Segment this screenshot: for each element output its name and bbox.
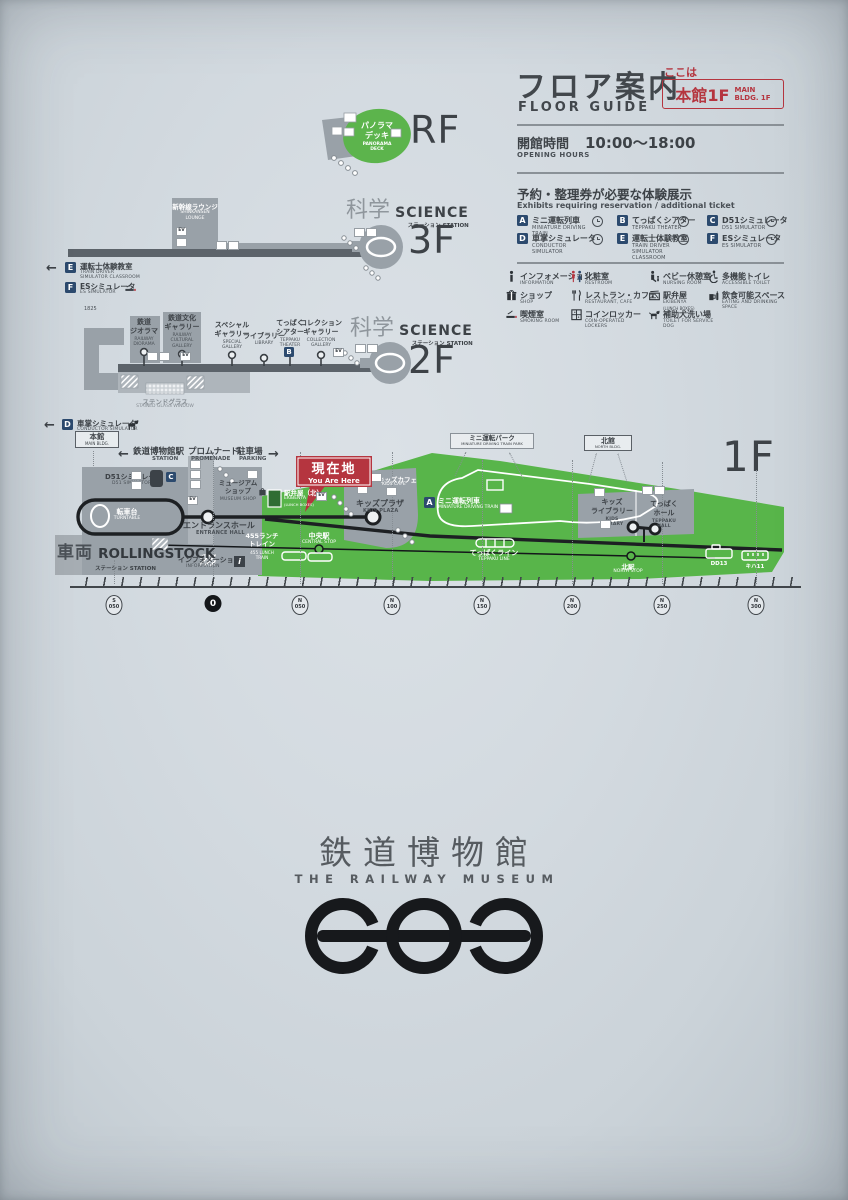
divider xyxy=(517,262,784,264)
accessible-toilet-icon xyxy=(707,270,720,283)
side-label-f-en: ES SIMULATOR xyxy=(80,290,116,295)
map-badge-b: B xyxy=(284,347,294,357)
stained-glass-label-en: STAINED GLASS WINDOW xyxy=(136,404,194,409)
room-label-en: SPECIAL GALLERY xyxy=(222,340,242,351)
restroom-icon xyxy=(366,228,377,237)
museum-shop-label-en: MUSEUM SHOP xyxy=(220,497,256,502)
lockers-icon xyxy=(570,308,583,321)
accessible-icon xyxy=(354,228,365,237)
kiha11-label: キハ11 xyxy=(746,562,765,570)
side-badge-f: F xyxy=(65,282,76,293)
legend-label-en: CONDUCTOR SIMULATOR xyxy=(532,243,590,255)
ruler-mark-n100: N100 xyxy=(384,595,401,615)
facility-label-en: RESTAURANT, CAFE xyxy=(585,300,632,305)
ruler-mark-n150: N150 xyxy=(474,595,491,615)
stained-glass-shape xyxy=(146,383,184,394)
reservation-subtitle: Exhibits requiring reservation / additio… xyxy=(517,201,735,210)
hours-label-en: OPENING HOURS xyxy=(517,151,590,159)
ekibenya-north-note: (LUNCH BOXES) xyxy=(284,502,314,507)
floor-label-3f: 3F xyxy=(408,218,456,262)
facility-label-en: INFORMATION xyxy=(520,281,554,286)
clock-icon xyxy=(678,216,689,227)
facility-label-en: RESTROOM xyxy=(585,281,612,286)
legend-badge-c: C xyxy=(707,215,718,226)
facility-label-en: SHOP xyxy=(520,300,533,305)
clock-icon xyxy=(766,234,777,245)
map-badge-a: A xyxy=(424,497,435,508)
room-label: 鉄道文化 ギャラリー xyxy=(165,314,200,332)
legend-badge-b: B xyxy=(617,215,628,226)
restroom-icon xyxy=(190,470,201,479)
smoking-icon xyxy=(505,308,518,321)
teppaku-line-label-en: TEPPAKU LINE xyxy=(478,557,509,562)
main-bldg-box: 本館 MAIN BLDG. xyxy=(75,431,119,448)
legend-badge-f: F xyxy=(707,233,718,244)
teppaku-hall-label: てっぱく ホール xyxy=(650,500,678,518)
side-label-e-en: TRAIN DRIVER SIMULATOR CLASSROOM xyxy=(80,270,140,280)
restaurant-icon xyxy=(386,487,397,496)
legend-label-en: TEPPAKU THEATER xyxy=(632,225,682,231)
ruler-mark-n300: N300 xyxy=(748,595,765,615)
map-badge-c: C xyxy=(166,472,176,482)
map-graphics xyxy=(0,0,848,1200)
facility-label-en: ACCESSIBLE TOILET xyxy=(722,281,777,286)
museum-shop-label: ミュージアム ショップ xyxy=(219,479,257,496)
accessible-icon xyxy=(190,460,201,469)
clock-icon xyxy=(592,216,603,227)
elevator-icon: EV xyxy=(180,352,191,361)
current-floor-jp: 本館1F xyxy=(675,82,729,106)
service-dog-icon xyxy=(125,417,140,432)
facility-label-en: NURSING ROOM xyxy=(663,281,702,286)
information-icon: i xyxy=(234,556,245,567)
measure-label: 1825 xyxy=(84,306,97,312)
station-label-en: STATION xyxy=(152,456,178,462)
legend-badge-e: E xyxy=(617,233,628,244)
grid-line xyxy=(482,460,483,584)
accessible-icon xyxy=(642,486,653,495)
room-label: コレクション ギャラリー xyxy=(300,319,342,337)
service-dog-icon xyxy=(648,308,661,321)
facility-label-en: TOILET FOR SERVICE DOG xyxy=(663,319,723,329)
clock-icon xyxy=(766,216,777,227)
museum-logo-jp: 鉄道博物館 xyxy=(319,826,539,874)
ruler-mark-n050: N050 xyxy=(292,595,309,615)
mini-train-label-en: MINIATURE DRIVING TRAIN xyxy=(438,505,498,510)
smoking-icon xyxy=(124,281,137,294)
railway-museum-logo-rings xyxy=(311,904,537,968)
restroom-icon xyxy=(228,241,239,250)
restaurant-icon xyxy=(570,289,583,302)
kids-plaza-label-en: KIDS PLAZA xyxy=(363,508,398,514)
room-label-en: RAILWAY DIORAMA xyxy=(133,337,154,348)
you-are-here-badge: 現在地 You Are Here xyxy=(296,456,372,487)
entrance-hall-label-en: ENTRANCE HALL xyxy=(196,530,245,536)
museum-logo-en: THE RAILWAY MUSEUM xyxy=(295,872,560,886)
left-arrow: ← xyxy=(46,261,57,276)
floor-guide-sign-photo: フロア案内 FLOOR GUIDE ここは 本館1F MAIN BLDG. 1F… xyxy=(0,0,848,1200)
lunch-train-label-en: 455 LUNCH TRAIN xyxy=(250,550,274,560)
grid-line xyxy=(392,452,393,584)
here-label: ここは xyxy=(664,64,697,80)
grid-line xyxy=(572,460,573,584)
floor-label-1f: 1F xyxy=(722,432,775,481)
nursing-room-icon xyxy=(648,270,661,283)
divider xyxy=(517,172,784,174)
panorama-deck-label: パノラマ デッキ xyxy=(361,121,393,142)
eating-space-icon xyxy=(707,289,720,302)
left-arrow: ← xyxy=(44,418,55,433)
room-label: 鉄道 ジオラマ xyxy=(130,318,158,336)
parking-label-en: PARKING xyxy=(239,456,266,462)
facility-label-en: EKIBENYA xyxy=(663,300,687,305)
accessible-icon xyxy=(159,352,170,361)
rf-stair-dots xyxy=(332,156,358,176)
north-stop-label-en: NORTH STOP xyxy=(613,569,642,574)
elevator-icon: EV xyxy=(316,492,327,501)
legend-label-en: TRAIN DRIVER SIMULATOR CLASSROOM xyxy=(632,243,694,261)
facility-label-en: COIN-OPERATED LOCKERS xyxy=(585,319,645,329)
restroom-icon xyxy=(367,344,378,353)
legend-badge-d: D xyxy=(517,233,528,244)
legend-label-en: D51 SIMULATOR xyxy=(722,225,772,231)
escalator-shape xyxy=(187,376,204,389)
room-label-en: COLLECTION GALLERY xyxy=(307,338,336,349)
current-floor-en: MAIN BLDG. 1F xyxy=(734,86,770,103)
escalator-shape xyxy=(121,375,138,388)
page-title-en: FLOOR GUIDE xyxy=(518,100,650,115)
leader-line xyxy=(93,451,94,466)
left-arrow: ← xyxy=(118,447,129,462)
current-floor-badge: 本館1F MAIN BLDG. 1F xyxy=(662,79,784,109)
central-stop-label-en: CENTRAL STOP xyxy=(302,540,336,545)
room-label-en: LIBRARY xyxy=(255,341,274,346)
panorama-deck-label-en: PANORAMA DECK xyxy=(363,142,392,153)
restroom-icon xyxy=(131,471,142,480)
hours-value: 10:00〜18:00 xyxy=(585,132,696,153)
ekibenya-icon xyxy=(648,289,661,302)
shop-icon xyxy=(505,289,518,302)
restroom-icon xyxy=(176,238,187,247)
ruler-mark-0: 0 xyxy=(205,595,222,612)
teppaku-hall-label-en: TEPPAKU HALL xyxy=(652,519,676,530)
floor-label-2f: 2F xyxy=(408,338,456,382)
elevator-icon: EV xyxy=(187,496,198,505)
dd13-label: DD13 xyxy=(711,561,728,567)
north-bldg-box: 北館 NORTH BLDG. xyxy=(584,435,632,451)
clock-icon xyxy=(592,234,603,245)
room-label-en: RAILWAY CULTURAL GALLERY xyxy=(171,333,194,349)
lockers-icon xyxy=(190,480,201,489)
ruler-line xyxy=(70,586,801,588)
side-badge-d: D xyxy=(62,419,73,430)
shop-bag-icon xyxy=(257,486,268,497)
shinkansen-lounge-label-en: SHINKANSEN LOUNGE xyxy=(180,210,209,221)
facility-label-en: EATING AND DRINKING SPACE xyxy=(722,300,782,310)
ruler-mark-n200: N200 xyxy=(564,595,581,615)
ekibenya-north-label-en: EKIBENYA xyxy=(284,496,306,501)
restroom-icon xyxy=(654,486,665,495)
turntable-label-en: TURNTABLE xyxy=(114,516,140,521)
accessible-icon xyxy=(355,344,366,353)
smoking-icon xyxy=(247,470,258,479)
nursing-room-icon xyxy=(371,473,382,482)
restroom-icon xyxy=(570,270,583,283)
elevator-icon: EV xyxy=(176,227,187,236)
floor-label-rf: RF xyxy=(410,108,460,152)
d51-front-icon xyxy=(150,470,163,487)
restroom-icon xyxy=(147,352,158,361)
mini-park-box: ミニ運転パーク MINIATURE DRIVING TRAIN PARK xyxy=(450,433,534,449)
restroom-icon xyxy=(594,488,605,497)
legend-badge-a: A xyxy=(517,215,528,226)
ekibenya-north-shape xyxy=(268,490,281,507)
kids-library-label: キッズ ライブラリー xyxy=(591,498,633,516)
ruler-mark-n250: N250 xyxy=(654,595,671,615)
information-icon xyxy=(505,270,518,283)
side-badge-e: E xyxy=(65,262,76,273)
information-label-en: INFORMATION xyxy=(186,564,220,569)
accessible-icon xyxy=(131,481,142,490)
elevator-icon: EV xyxy=(333,348,344,357)
clock-icon xyxy=(678,234,689,245)
facility-label-en: SMOKING ROOM xyxy=(520,319,559,324)
book-icon xyxy=(600,520,611,529)
hours-label: 開館時間 xyxy=(517,133,569,152)
legend-label-en: ES SIMULATOR xyxy=(722,243,772,249)
right-arrow: → xyxy=(268,447,279,462)
ruler-mark-s050: S050 xyxy=(106,595,123,615)
accessible-icon xyxy=(216,241,227,250)
divider xyxy=(517,124,784,126)
lunch-train-label: 455ランチ トレイン xyxy=(245,532,278,549)
